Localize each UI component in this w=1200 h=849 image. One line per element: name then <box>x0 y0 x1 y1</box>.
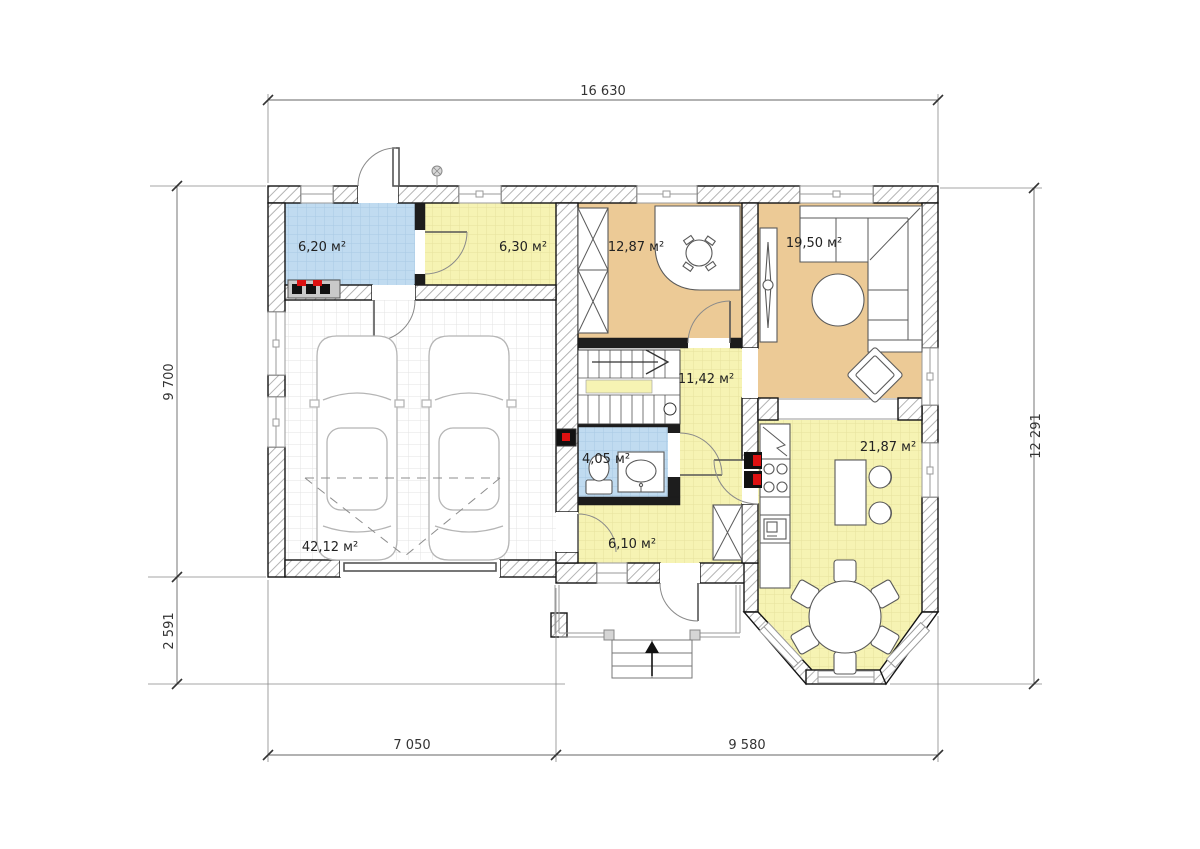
hall-living-opening <box>742 348 758 398</box>
dim-label-left-lower: 2 591 <box>162 612 177 649</box>
window <box>459 186 501 203</box>
lamp-icon <box>432 166 442 186</box>
window <box>922 443 938 497</box>
wall-segment <box>268 447 285 577</box>
wall-segment <box>268 203 285 312</box>
tv-stand-icon <box>760 228 777 342</box>
room-area-label: 19,50 м² <box>786 236 842 251</box>
porch-railing <box>555 585 740 637</box>
room-area-label: 6,10 м² <box>608 537 656 552</box>
wall-segment <box>898 398 922 420</box>
wall-segment <box>697 186 800 203</box>
wall-segment <box>415 285 556 300</box>
wall-segment <box>398 186 459 203</box>
room-area-label: 21,87 м² <box>860 440 916 455</box>
room-area-label: 42,12 м² <box>302 540 358 555</box>
window <box>597 563 627 583</box>
window <box>268 312 285 375</box>
dim-label-top: 16 630 <box>580 84 626 99</box>
wall-segment <box>700 563 745 583</box>
room-area-label: 6,30 м² <box>499 240 547 255</box>
wall-segment <box>556 203 578 512</box>
garage-door <box>340 560 500 577</box>
stair-landing-strip <box>586 380 652 393</box>
wall-segment <box>268 375 285 397</box>
wall-segment <box>556 563 597 583</box>
wall-partition <box>415 274 425 285</box>
oven-icon <box>764 519 786 539</box>
wall-segment <box>744 563 758 612</box>
stair-newel-post <box>664 403 676 415</box>
window <box>268 397 285 447</box>
wall-partition <box>730 338 742 348</box>
bar-stool-icon <box>869 502 892 524</box>
window <box>922 348 938 405</box>
bar-stool-icon <box>869 466 892 488</box>
room-area-label: 4,05 м² <box>582 452 630 467</box>
kitchen-island-icon <box>835 460 866 525</box>
wall-segment <box>742 504 758 563</box>
railing-post <box>690 630 700 640</box>
wall-partition <box>415 203 425 230</box>
room-area-label: 6,20 м² <box>298 240 346 255</box>
entry-steps <box>612 640 692 678</box>
wall-segment <box>742 203 758 348</box>
dim-label-bottom-right: 9 580 <box>728 738 765 753</box>
porch-door <box>660 563 700 621</box>
dim-label-right: 12 291 <box>1029 413 1044 459</box>
wall-segment <box>501 186 637 203</box>
wall-segment <box>627 563 660 583</box>
boiler-equipment-icon <box>288 280 340 298</box>
floor-plan-canvas: 6,20 м² 6,30 м² 12,87 м² 19,50 м² 11,42 … <box>0 0 1200 849</box>
porch <box>555 585 740 678</box>
window <box>637 186 697 203</box>
coffee-table-icon <box>812 274 864 326</box>
floor-plan-page: 6,20 м² 6,30 м² 12,87 м² 19,50 м² 11,42 … <box>0 0 1200 849</box>
wall-partition <box>578 338 688 348</box>
dim-label-left-upper: 9 700 <box>162 363 177 400</box>
entrance-door <box>358 148 399 203</box>
wall-segment <box>922 203 938 348</box>
room-area-label: 11,42 м² <box>678 372 734 387</box>
wall-segment <box>285 560 340 577</box>
kitchen-counter-icon <box>760 424 790 588</box>
window <box>800 186 873 203</box>
dining-table-icon <box>809 581 881 653</box>
wall-segment <box>922 405 938 443</box>
wall-segment <box>873 186 938 203</box>
dim-label-bottom-left: 7 050 <box>393 738 430 753</box>
wall-segment <box>758 398 778 420</box>
wall-segment <box>268 186 301 203</box>
staircase <box>578 350 680 424</box>
radiator-icon <box>556 429 576 446</box>
car-icon <box>310 336 404 560</box>
car-icon <box>422 336 516 560</box>
chair-icon <box>834 560 856 582</box>
window <box>301 186 333 203</box>
office-chair-icon <box>683 235 716 271</box>
wall-partition <box>578 497 680 505</box>
wall-segment <box>742 398 758 460</box>
wardrobe-icon <box>578 208 608 333</box>
wall-segment <box>333 186 358 203</box>
room-area-label: 12,87 м² <box>608 240 664 255</box>
closet-icon <box>713 505 742 560</box>
chair-icon <box>834 652 856 674</box>
wall-segment <box>922 497 938 612</box>
railing-post <box>604 630 614 640</box>
wall-partition <box>668 477 680 497</box>
wall-segment <box>556 552 578 563</box>
living-kitchen-portal-floor <box>778 398 898 420</box>
